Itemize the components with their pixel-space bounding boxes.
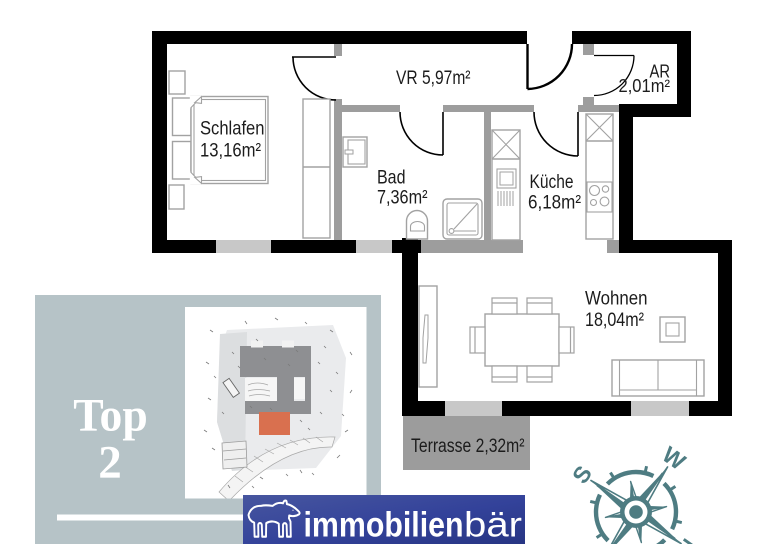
svg-text:Schlafen: Schlafen [200, 118, 265, 140]
svg-text:2: 2 [98, 437, 122, 489]
svg-text:S: S [567, 461, 597, 488]
svg-text:immobilien: immobilien [304, 506, 464, 544]
svg-text:Bad: Bad [377, 167, 406, 189]
svg-text:Wohnen: Wohnen [585, 288, 648, 310]
svg-text:7,36m²: 7,36m² [377, 187, 428, 209]
svg-text:Terrasse 2,32m²: Terrasse 2,32m² [411, 436, 525, 457]
svg-text:18,04m²: 18,04m² [585, 309, 644, 331]
svg-text:2,01m²: 2,01m² [619, 76, 671, 96]
svg-text:Küche: Küche [530, 171, 574, 193]
svg-text:6,18m²: 6,18m² [528, 192, 581, 214]
svg-text:bär: bär [464, 506, 522, 544]
svg-text:VR 5,97m²: VR 5,97m² [396, 67, 471, 89]
svg-text:N: N [672, 534, 703, 544]
svg-text:13,16m²: 13,16m² [200, 140, 261, 162]
svg-text:W: W [658, 441, 691, 475]
svg-text:Top: Top [73, 390, 148, 442]
